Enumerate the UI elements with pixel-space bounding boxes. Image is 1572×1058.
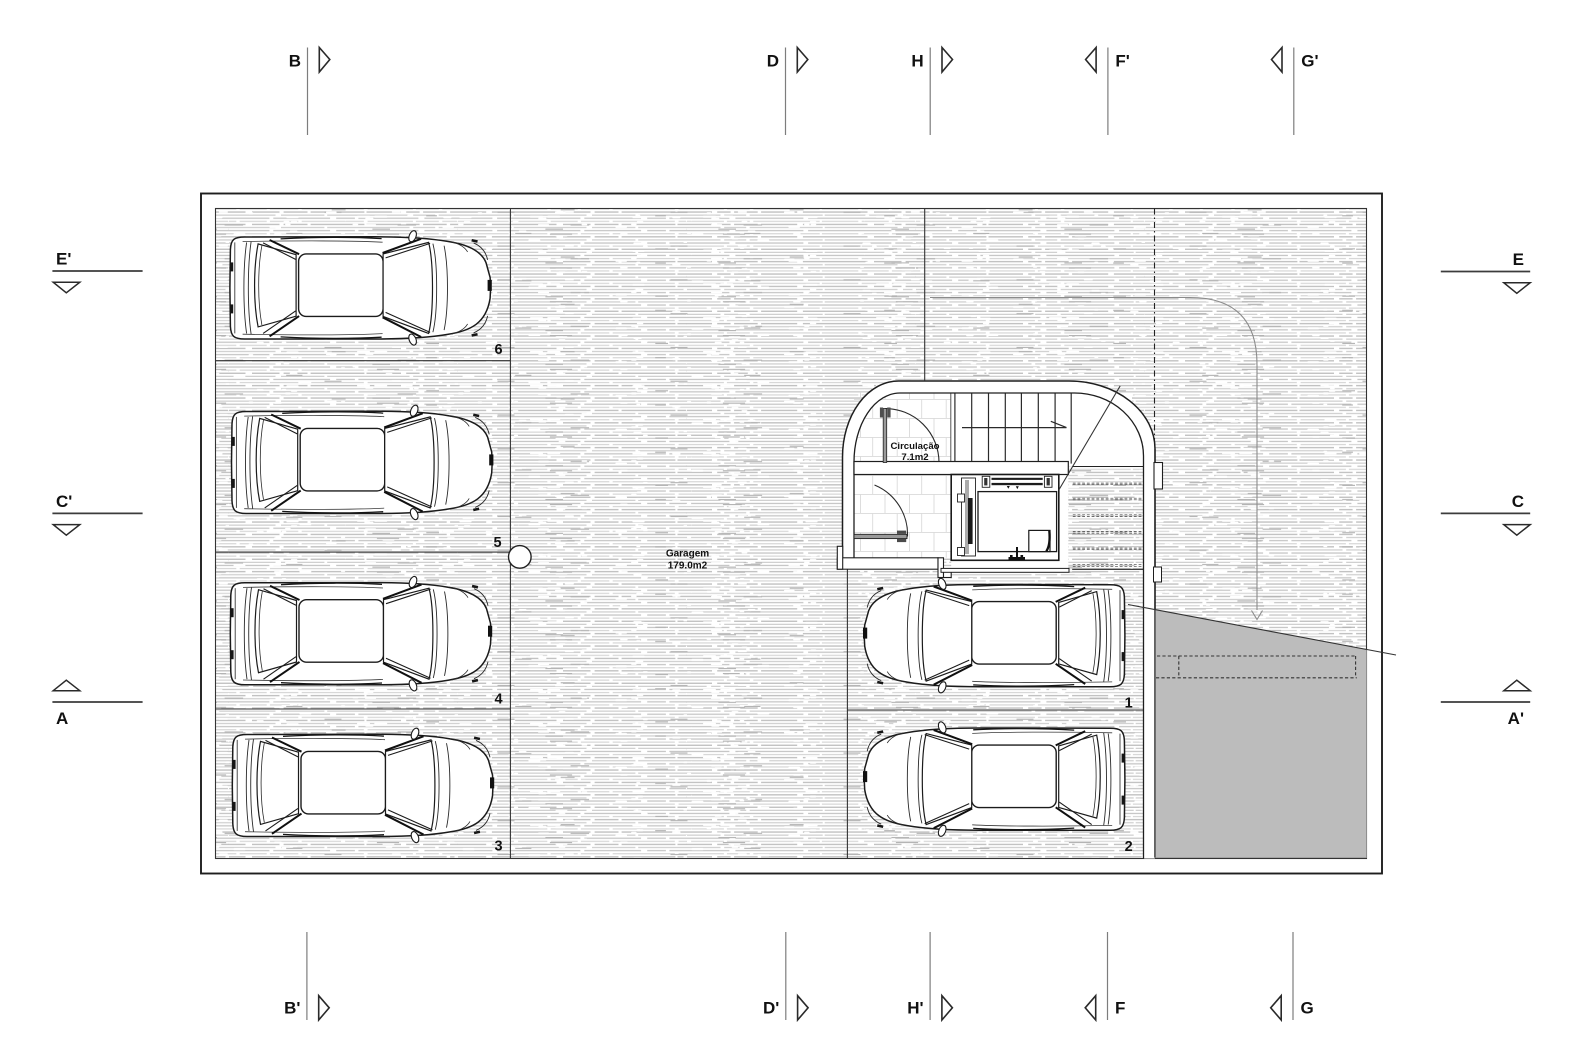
svg-text:F: F [1115, 999, 1125, 1018]
svg-text:Circulação: Circulação [890, 441, 939, 452]
svg-text:A': A' [1508, 709, 1524, 728]
svg-text:C: C [1512, 492, 1524, 511]
svg-text:G: G [1301, 999, 1314, 1018]
svg-text:1: 1 [1125, 696, 1133, 712]
svg-text:6: 6 [494, 342, 502, 358]
svg-text:7.1m2: 7.1m2 [901, 452, 928, 463]
svg-text:B: B [289, 52, 301, 71]
svg-text:C': C' [56, 492, 72, 511]
svg-text:Garagem: Garagem [666, 549, 709, 560]
svg-text:D': D' [763, 999, 779, 1018]
svg-text:D: D [767, 52, 779, 71]
svg-text:A: A [56, 709, 68, 728]
svg-text:H: H [911, 52, 923, 71]
svg-text:B': B' [284, 999, 300, 1018]
svg-text:E': E' [56, 250, 71, 269]
svg-text:H': H' [907, 999, 923, 1018]
svg-text:F': F' [1115, 52, 1129, 71]
svg-text:179.0m2: 179.0m2 [668, 561, 708, 572]
svg-text:2: 2 [1125, 839, 1133, 855]
svg-text:3: 3 [494, 839, 502, 855]
svg-text:4: 4 [494, 692, 502, 708]
svg-text:G': G' [1301, 52, 1318, 71]
svg-text:5: 5 [493, 535, 501, 551]
svg-text:E: E [1513, 250, 1524, 269]
